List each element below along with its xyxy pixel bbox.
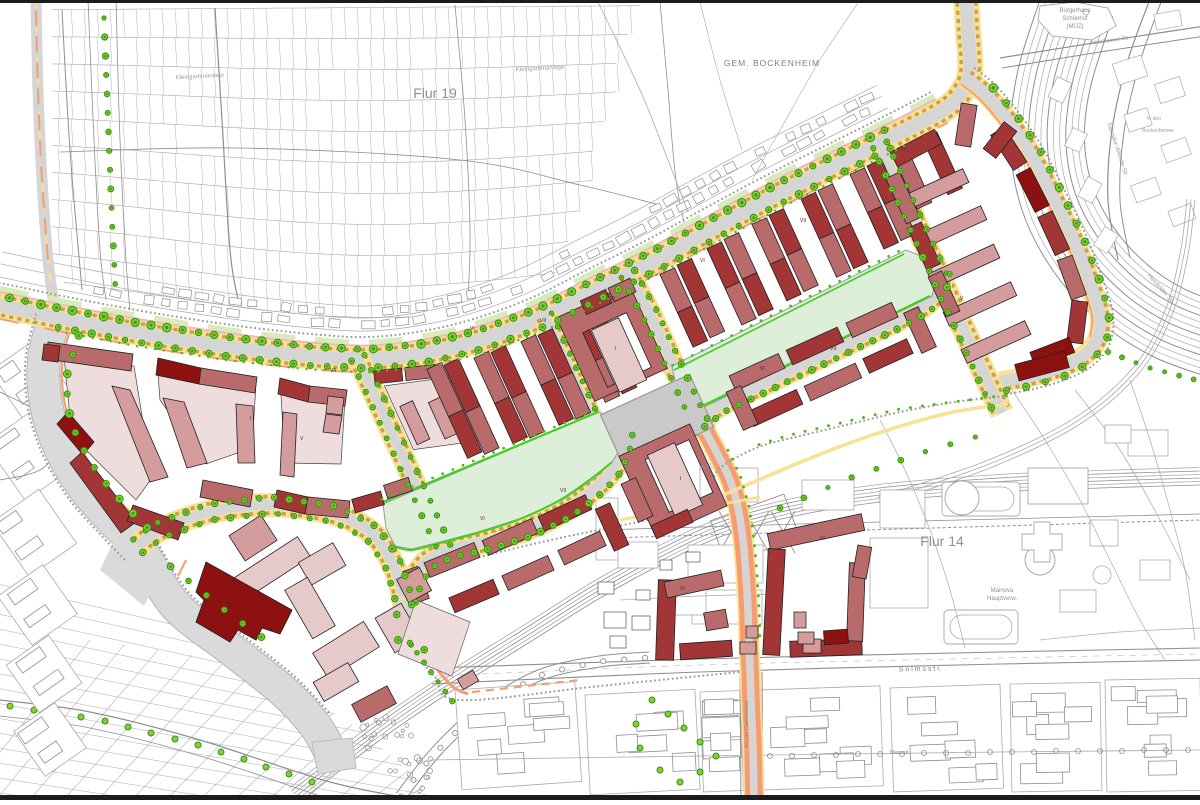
svg-text:Flur 19: Flur 19 [413,85,457,101]
svg-text:S o l m s s t r.: S o l m s s t r. [899,666,942,674]
svg-text:VI: VI [680,586,685,592]
svg-text:VI: VI [480,516,485,522]
svg-text:VI: VI [700,258,705,264]
svg-text:VI: VI [610,296,615,302]
svg-text:Schönhof: Schönhof [1062,16,1088,22]
svg-text:I: I [615,346,616,352]
svg-text:VI: VI [760,366,765,372]
svg-text:GEM. BOCKENHEIM: GEM. BOCKENHEIM [724,58,820,68]
svg-text:Flur 14: Flur 14 [920,533,964,549]
svg-text:In den: In den [1147,116,1161,122]
svg-text:VII: VII [560,488,566,494]
svg-text:Mainova: Mainova [991,588,1014,594]
svg-text:VII: VII [830,346,836,352]
svg-text:I: I [250,416,251,422]
svg-text:Hauptverw.: Hauptverw. [987,596,1017,602]
svg-text:VII: VII [540,318,546,324]
svg-text:VIII: VIII [1030,196,1038,202]
svg-text:(MÜZ): (MÜZ) [1067,23,1084,30]
svg-text:Niersstr.: Niersstr. [890,750,911,756]
svg-text:An der Dammheide: An der Dammheide [744,700,750,747]
svg-text:Bockenheimer: Bockenheimer [1142,128,1174,134]
svg-text:I: I [680,476,681,482]
svg-text:Bürgerhaus: Bürgerhaus [1059,8,1090,14]
svg-text:VI: VI [820,536,825,542]
svg-text:VII: VII [800,218,806,224]
